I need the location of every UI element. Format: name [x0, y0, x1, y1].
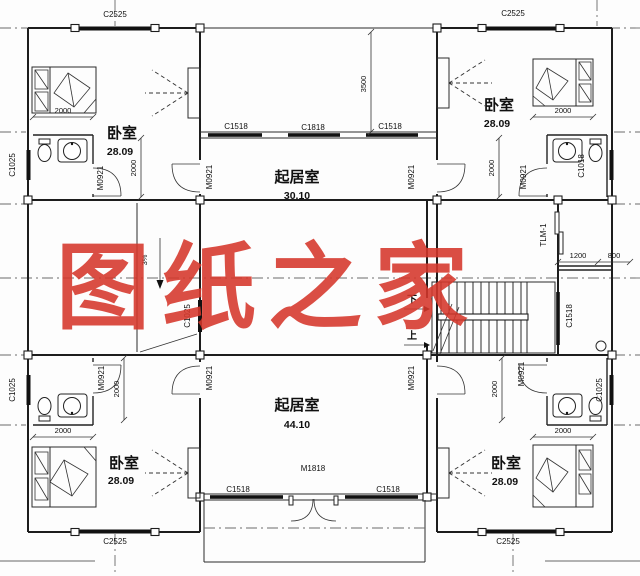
watermark-text: 图纸之家	[56, 233, 480, 343]
room-label-bedroom-top-left: 卧室	[107, 124, 137, 142]
window-label-c1818-upper: C1818	[301, 123, 325, 132]
door-label-m0921: M0921	[407, 164, 416, 189]
window-label-c2525-top-left: C2525	[103, 10, 127, 19]
window-label-c2525-bottom-left: C2525	[103, 537, 127, 546]
dim-2000-v: 2000	[112, 381, 121, 398]
dim-2000: 2000	[555, 426, 572, 435]
dim-3500: 3500	[359, 76, 368, 93]
door-label-m0921: M0921	[96, 165, 105, 190]
dim-2000-v: 2000	[487, 160, 496, 177]
room-label-living-upper: 起居室	[273, 168, 319, 186]
window-label-c1025-top-left: C1025	[8, 153, 17, 177]
window-label-c2525-bottom-right: C2525	[496, 537, 520, 546]
dim-2000: 2000	[55, 426, 72, 435]
dim-1200: 1200	[570, 251, 587, 260]
door-label-m0921: M0921	[97, 365, 106, 390]
dim-800: 800	[608, 251, 621, 260]
dim-2000-v: 2000	[129, 160, 138, 177]
room-area-bedroom-bottom-left: 28.09	[108, 475, 134, 487]
wardrobe-bottom-right	[437, 448, 492, 498]
door-label-m0921: M0921	[517, 361, 526, 386]
floor-drain	[596, 341, 606, 351]
bed-bottom-right	[533, 445, 593, 507]
door-label-m0921: M0921	[407, 365, 416, 390]
wardrobe-bottom-left	[145, 448, 200, 498]
window-label-c1518-stair: C1518	[565, 304, 574, 328]
window-label-c1518-lower-right: C1518	[376, 485, 400, 494]
window-label-c1518-lower-left: C1518	[226, 485, 250, 494]
sink-icon	[58, 139, 87, 162]
room-area-bedroom-top-left: 28.09	[107, 146, 133, 158]
toilet-icon	[38, 139, 51, 162]
entry-porch	[204, 500, 425, 562]
window-label-c1025-bottom-left: C1025	[8, 378, 17, 402]
door-label-m1818: M1818	[301, 464, 326, 473]
room-label-bedroom-bottom-right: 卧室	[491, 454, 521, 472]
dim-2000: 2000	[555, 106, 572, 115]
room-label-living-lower: 起居室	[273, 396, 319, 414]
sink-icon	[553, 394, 582, 417]
bed-bottom-left	[32, 447, 96, 507]
floor-plan-svg: C2525 C2525 C2525 C2525 C1518 C1818 C151…	[0, 0, 640, 576]
toilet-icon	[589, 139, 602, 162]
door-arc-lower-left-living	[172, 366, 200, 394]
door-arc-upper-right-living	[437, 164, 465, 192]
window-label-c2525-top-right: C2525	[501, 9, 525, 18]
door-arc-upper-left-living	[172, 164, 200, 192]
room-label-bedroom-top-right: 卧室	[484, 96, 514, 114]
window-label-c1518-upper-left: C1518	[224, 122, 248, 131]
toilet-icon	[38, 398, 51, 422]
sink-icon	[58, 394, 87, 417]
window-label-c1518-upper-right: C1518	[378, 122, 402, 131]
floor-plan-canvas: C2525 C2525 C2525 C2525 C1518 C1818 C151…	[0, 0, 640, 576]
bed-top-right	[533, 59, 593, 106]
dim-2000: 2000	[55, 106, 72, 115]
door-label-tlm1: TLM-1	[539, 223, 548, 247]
door-label-m0921: M0921	[519, 164, 528, 189]
dim-2000-v: 2000	[490, 381, 499, 398]
room-area-living-lower: 44.10	[284, 419, 310, 431]
room-area-bedroom-bottom-right: 28.09	[492, 476, 518, 488]
room-area-living-upper: 30.10	[284, 190, 310, 202]
room-area-bedroom-top-right: 28.09	[484, 118, 510, 130]
sliding-door-tlm1	[555, 212, 563, 254]
wardrobe-top-left	[145, 68, 200, 118]
door-label-m0921: M0921	[205, 365, 214, 390]
door-label-m0921: M0921	[205, 164, 214, 189]
window-label-c1018-top-right: C1018	[577, 154, 586, 178]
room-label-bedroom-bottom-left: 卧室	[109, 454, 139, 472]
door-arc-lower-right-living	[437, 366, 465, 394]
window-label-c1025-bottom-right: C1025	[595, 378, 604, 402]
